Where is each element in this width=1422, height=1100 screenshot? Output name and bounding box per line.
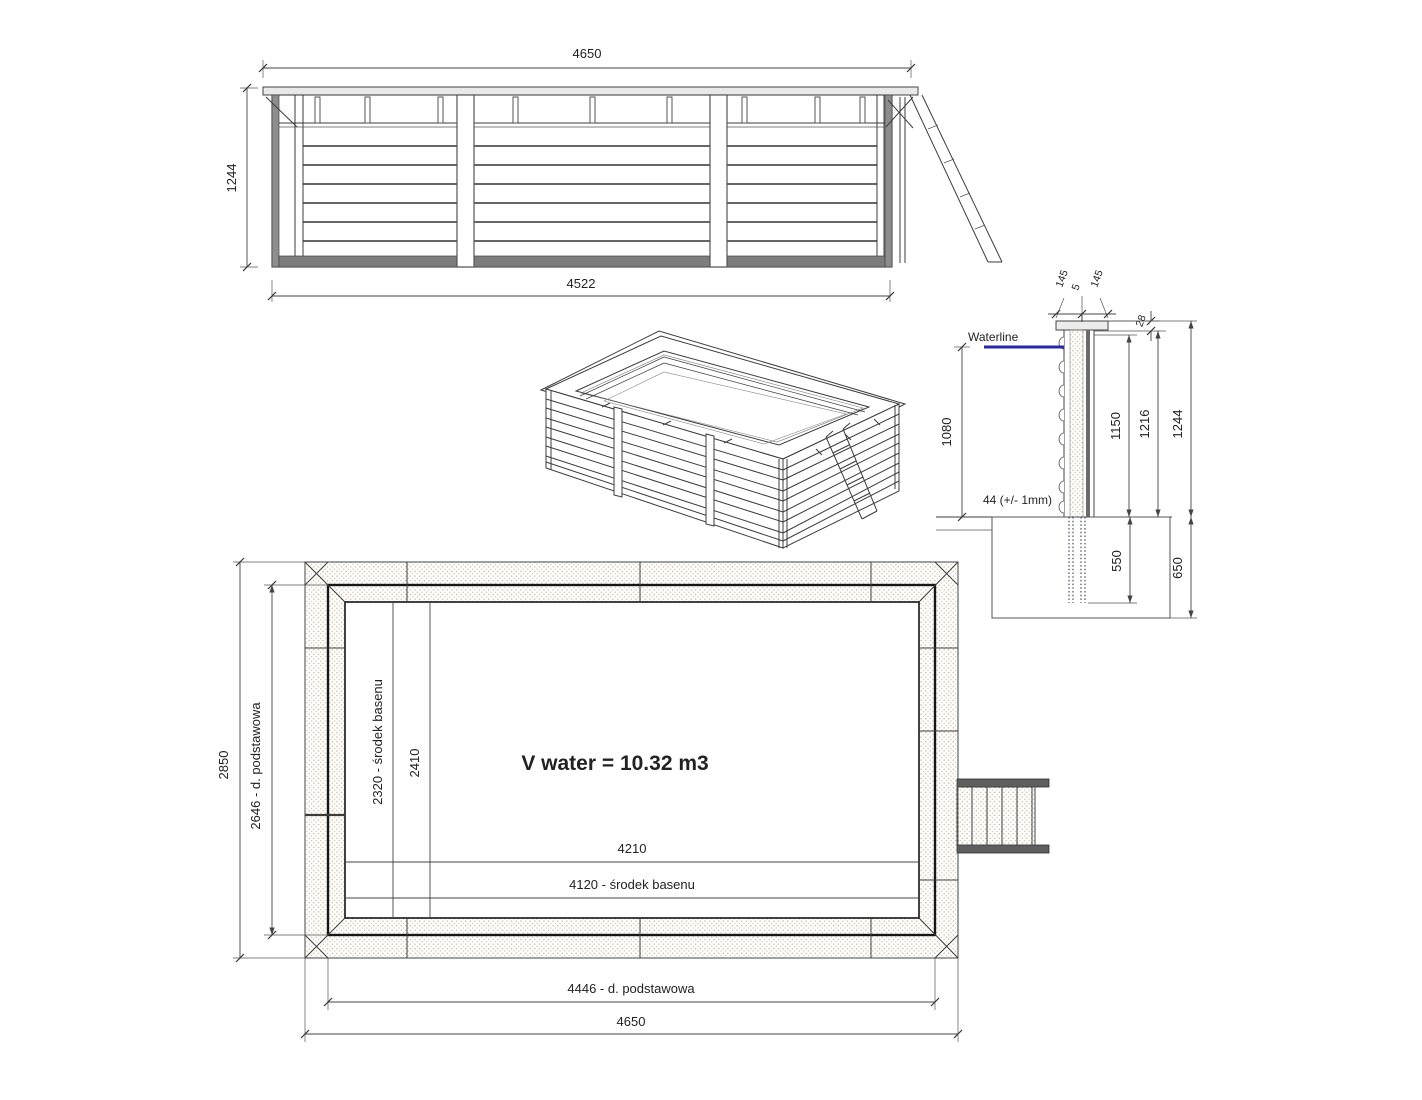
dim-water-depth: 1080 xyxy=(939,418,954,447)
dim-plan-base-length: 4446 - d. podstawowa xyxy=(567,981,695,996)
dim-plan-center-length: 4120 - środek basenu xyxy=(569,877,695,892)
pool-top-rim xyxy=(263,87,918,95)
dim-plan-inner-length: 4210 xyxy=(618,841,647,856)
plank-thickness-note: 44 (+/- 1mm) xyxy=(983,493,1052,507)
plan-view: 2320 - środek basenu 2410 V water = 10.3… xyxy=(216,558,1049,1042)
pool-technical-drawing: 4650 1244 xyxy=(0,0,1422,1100)
dim-elevation-bottom: 4522 xyxy=(567,276,596,291)
side-elevation-view: 4650 1244 xyxy=(224,46,1002,302)
isometric-view xyxy=(541,331,905,548)
dim-plan-outer-length: 4650 xyxy=(617,1014,646,1029)
dim-plan-inner-width: 2410 xyxy=(407,749,422,778)
dim-elevation-left: 1244 xyxy=(224,164,239,193)
drawing-sheet: 4650 1244 xyxy=(0,0,1422,1100)
dim-total-height: 1244 xyxy=(1170,410,1185,439)
dim-plan-base-width: 2646 - d. podstawowa xyxy=(248,702,263,830)
plan-ladder xyxy=(957,779,1049,853)
dim-plan-center-width: 2320 - środek basenu xyxy=(370,679,385,805)
dim-section-gap: 5 xyxy=(1070,282,1083,292)
cover-post xyxy=(457,95,474,267)
wall-section-view: 145 5 145 Waterline 1080 44 (+/- 1mm) xyxy=(936,268,1197,618)
dim-section-plank-left: 145 xyxy=(1054,268,1071,289)
embedded-posts xyxy=(1069,517,1085,603)
dim-foundation-depth: 650 xyxy=(1170,557,1185,579)
section-cap xyxy=(1056,321,1108,330)
dim-section-plank-right: 145 xyxy=(1089,268,1106,289)
dim-mid-height: 1216 xyxy=(1137,410,1152,439)
dim-plan-outer-width: 2850 xyxy=(216,751,231,780)
waterline-label: Waterline xyxy=(968,330,1019,344)
water-volume-label: V water = 10.32 m3 xyxy=(521,752,708,775)
elevation-ladder xyxy=(888,95,1002,263)
cover-post xyxy=(710,95,727,267)
log-profile-scallops xyxy=(1059,337,1064,513)
dim-elevation-top: 4650 xyxy=(573,46,602,61)
dim-post-embed: 550 xyxy=(1109,550,1124,572)
dim-inner-height: 1150 xyxy=(1108,412,1123,440)
